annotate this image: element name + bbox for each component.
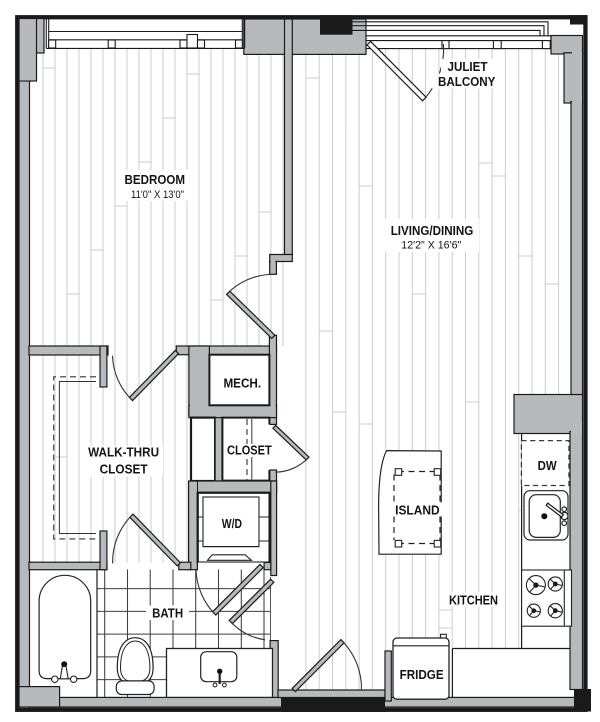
svg-text:CLOSET: CLOSET [227, 443, 272, 458]
svg-text:CLOSET: CLOSET [100, 462, 148, 477]
svg-text:W/D: W/D [222, 516, 242, 531]
svg-text:DW: DW [538, 459, 557, 473]
svg-text:BALCONY: BALCONY [438, 74, 496, 89]
svg-text:BEDROOM: BEDROOM [125, 172, 186, 187]
svg-text:MECH.: MECH. [223, 375, 261, 390]
svg-text:JULIET: JULIET [448, 59, 488, 74]
svg-text:FRIDGE: FRIDGE [400, 667, 444, 682]
svg-text:12'2" X 16'6": 12'2" X 16'6" [401, 239, 461, 251]
svg-text:KITCHEN: KITCHEN [449, 593, 498, 608]
svg-text:BATH: BATH [152, 605, 183, 620]
svg-text:WALK-THRU: WALK-THRU [88, 444, 159, 459]
svg-text:LIVING/DINING: LIVING/DINING [391, 223, 474, 238]
svg-text:11'0" X 13'0": 11'0" X 13'0" [131, 189, 184, 201]
svg-text:ISLAND: ISLAND [395, 502, 440, 517]
